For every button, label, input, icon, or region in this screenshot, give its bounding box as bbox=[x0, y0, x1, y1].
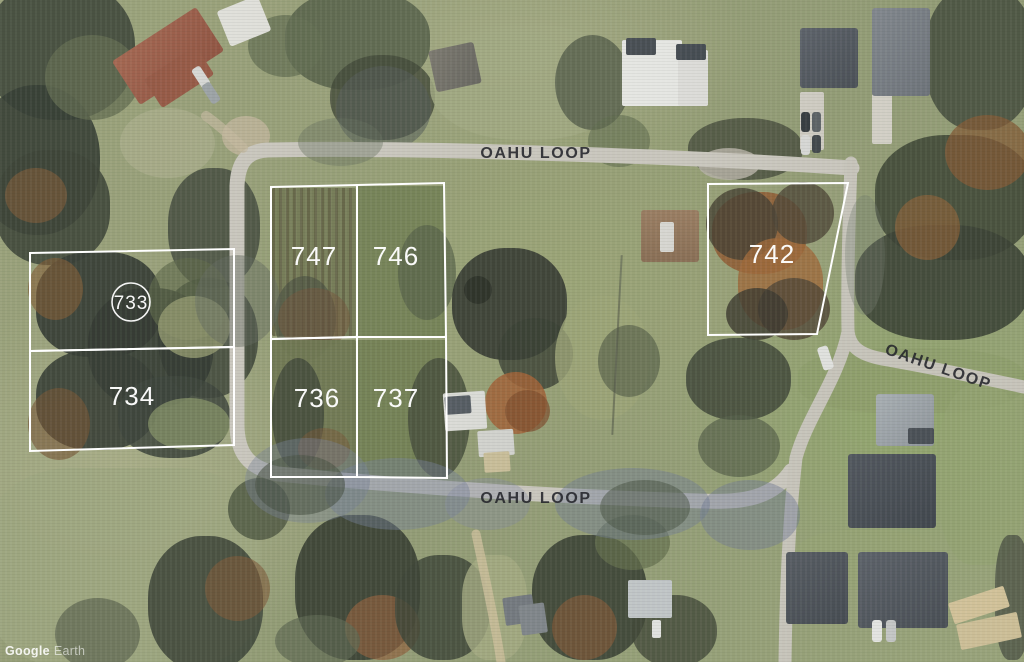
lot-label-733: 733 bbox=[114, 293, 149, 314]
parcel-annotation-overlay: 733 734 747 746 736 737 742 OAHU LOOP OA… bbox=[0, 0, 1024, 662]
lot-label-734: 734 bbox=[109, 381, 155, 411]
lot-label-747: 747 bbox=[291, 241, 337, 271]
street-label-oahu-loop-right: OAHU LOOP bbox=[883, 341, 994, 393]
street-label-oahu-loop-top: OAHU LOOP bbox=[480, 145, 591, 162]
lot-label-737: 737 bbox=[373, 383, 419, 413]
lot-label-746: 746 bbox=[373, 241, 419, 271]
lot-label-742: 742 bbox=[749, 239, 795, 269]
watermark-brand: Google bbox=[5, 644, 50, 658]
aerial-map: 733 734 747 746 736 737 742 OAHU LOOP OA… bbox=[0, 0, 1024, 662]
google-earth-watermark: GoogleEarth bbox=[5, 644, 85, 658]
lot-label-736: 736 bbox=[294, 383, 340, 413]
street-label-oahu-loop-bottom: OAHU LOOP bbox=[480, 490, 591, 507]
lot-boundaries bbox=[30, 183, 848, 478]
watermark-product: Earth bbox=[54, 644, 85, 658]
